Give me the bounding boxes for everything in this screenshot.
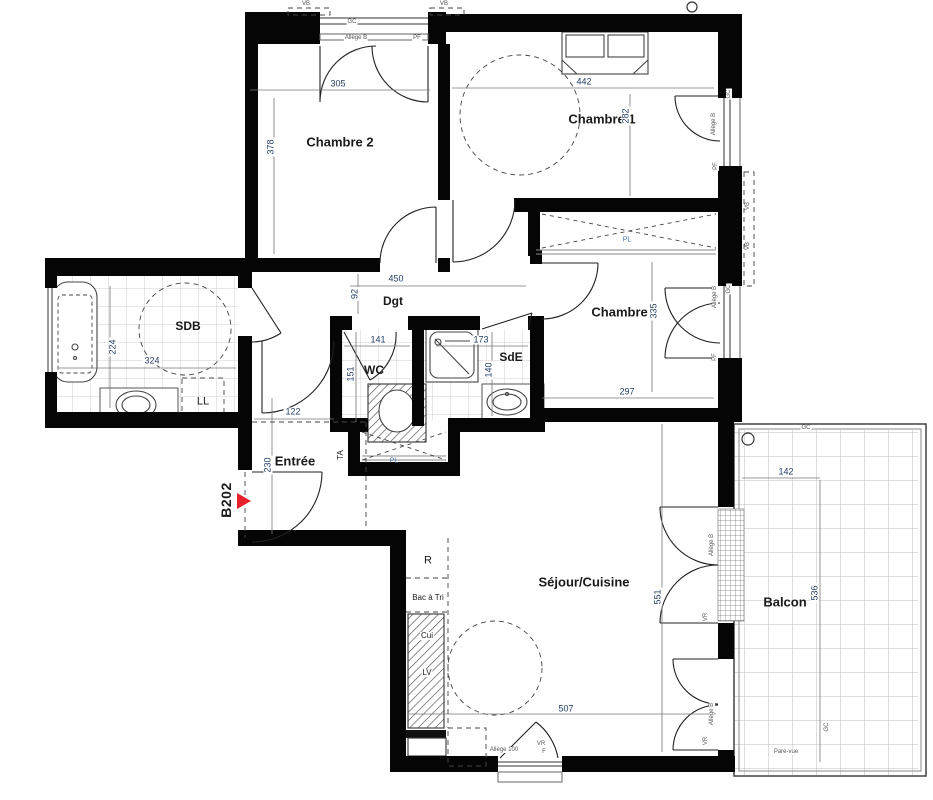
entrance-arrow bbox=[237, 493, 251, 509]
markers bbox=[237, 2, 754, 509]
floor-plan-drawing bbox=[0, 0, 933, 800]
washing-machine-label: LL bbox=[197, 397, 209, 408]
cooker-label: Cui bbox=[420, 632, 434, 640]
dim-sejour-width: 507 bbox=[556, 705, 575, 714]
dim-wc-width: 141 bbox=[368, 336, 387, 345]
dishwasher-label: LV bbox=[421, 669, 432, 677]
dim-chambre3-width: 297 bbox=[617, 388, 636, 397]
unit-label: B202 bbox=[219, 482, 233, 517]
gc-annotation-chambre1: GC bbox=[726, 89, 732, 100]
bathtub bbox=[53, 282, 97, 382]
dim-balcon-height: 536 bbox=[811, 583, 820, 602]
survey-point-top bbox=[687, 2, 697, 12]
allege-annotation-sejour-window: Allège 100 bbox=[489, 747, 519, 753]
closet-label-entree: PL bbox=[390, 458, 399, 465]
sejour-window bbox=[498, 756, 562, 782]
dim-sejour-height: 551 bbox=[654, 587, 663, 606]
kitchen-strip bbox=[406, 538, 448, 756]
electrical-panel-label: TA bbox=[337, 449, 345, 461]
allege-annotation-chambre1: Allège B bbox=[711, 112, 717, 136]
fridge-label: R bbox=[424, 556, 432, 567]
dim-chambre1-height: 282 bbox=[622, 106, 631, 125]
turning-circle-sejour bbox=[448, 621, 542, 715]
vr-annotation-sejour-1: VR bbox=[703, 613, 709, 621]
dim-dgt-width: 450 bbox=[386, 275, 405, 284]
dim-chambre3-height: 335 bbox=[650, 301, 659, 320]
pare-vue-label: Pare-vue bbox=[773, 749, 799, 755]
dim-balcon-width: 142 bbox=[776, 468, 795, 477]
dim-chambre2-height: 378 bbox=[267, 137, 276, 156]
bed bbox=[562, 32, 648, 74]
floor-tiles bbox=[57, 276, 918, 776]
dim-sdb-height: 224 bbox=[109, 337, 118, 356]
gc-annotation-balcony-top: GC bbox=[801, 425, 812, 431]
pf-annotation-chambre1: PF bbox=[713, 161, 719, 171]
dim-chambre1-width: 442 bbox=[574, 78, 593, 87]
room-label-sdb: SDB bbox=[175, 320, 200, 332]
sdb-window bbox=[45, 288, 57, 372]
gc-annotation-balcony-right: GC bbox=[824, 722, 830, 733]
allege-annotation-sejour-2: Allège B bbox=[709, 702, 715, 726]
closet-label-hall: PL bbox=[623, 237, 632, 244]
vb-annotation-top-left: VB bbox=[302, 1, 310, 7]
room-label-sejour: Séjour/Cuisine bbox=[538, 576, 629, 589]
vb-annotation-right-1: VB bbox=[745, 202, 751, 210]
dim-entree-height: 230 bbox=[264, 455, 273, 474]
pf-annotation-chambre3: PF bbox=[712, 352, 718, 362]
vr-annotation-sejour-window: VR bbox=[537, 741, 545, 747]
allege-annotation-top: Allège B bbox=[344, 35, 368, 41]
vb-annotation-right-2: VB bbox=[745, 242, 751, 250]
allege-annotation-chambre3: Allège B bbox=[712, 285, 718, 309]
balcony-door-sill bbox=[718, 509, 744, 621]
shower bbox=[426, 328, 478, 382]
dim-wc-height: 151 bbox=[347, 364, 356, 383]
floor-plan: Chambre 2 Chambre 1 Chambre 3 SDB WC SdE… bbox=[0, 0, 933, 800]
room-label-entree: Entrée bbox=[275, 455, 315, 468]
dim-entree-width: 122 bbox=[283, 408, 302, 417]
allege-annotation-sejour-1: Allège B bbox=[709, 533, 715, 557]
dim-sde-height: 140 bbox=[485, 360, 494, 379]
chambre3-window bbox=[718, 286, 742, 358]
gc-annotation-chambre3: GC bbox=[726, 284, 732, 295]
pf-annotation-top: PF bbox=[412, 35, 422, 41]
chambre1-window bbox=[718, 98, 742, 166]
room-label-sde: SdE bbox=[499, 351, 522, 363]
f-annotation-sejour-window: F bbox=[542, 749, 546, 755]
gc-annotation-top: GC bbox=[347, 19, 358, 25]
room-label-chambre2: Chambre 2 bbox=[306, 136, 373, 149]
room-label-wc: WC bbox=[364, 364, 384, 376]
dim-sdb-width: 324 bbox=[142, 357, 161, 366]
vr-annotation-sejour-2: VR bbox=[703, 737, 709, 745]
dim-sde-width: 173 bbox=[471, 336, 490, 345]
room-label-dgt: Dgt bbox=[383, 295, 403, 307]
dim-dgt-height: 92 bbox=[351, 287, 360, 301]
dim-chambre2-width: 305 bbox=[328, 80, 347, 89]
room-label-balcon: Balcon bbox=[763, 596, 806, 609]
sorting-bin-label: Bac à Tri bbox=[411, 594, 445, 602]
vb-annotation-top-right: VB bbox=[440, 1, 448, 7]
